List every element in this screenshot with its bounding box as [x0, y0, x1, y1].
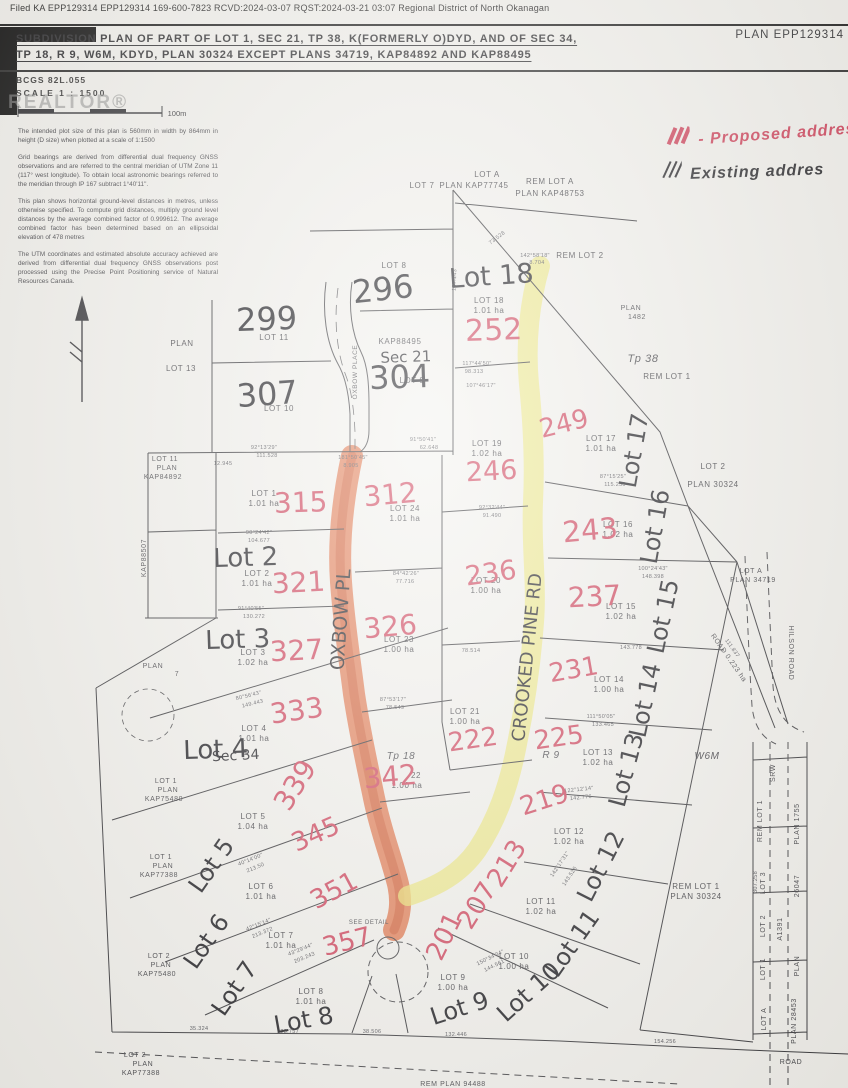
map-printed-label: ROAD — [780, 1059, 803, 1066]
map-printed-label: PLAN KAP48753 — [515, 189, 584, 198]
map-handwritten-label: CROOKED PINE RD — [508, 572, 547, 743]
map-address-label: 225 — [532, 720, 585, 757]
subdivision-plan-map: 100m LOT 7LOT APLAN KAP77745REM LOT APLA… — [0, 0, 848, 1088]
map-address-label: 321 — [271, 565, 326, 601]
map-printed-label: LOT 13 — [166, 364, 196, 373]
map-printed-label: LOT 1 — [760, 958, 767, 980]
map-address-label: 351 — [305, 866, 363, 916]
map-handwritten-label: Lot 4 — [183, 734, 249, 766]
map-printed-label: KAP77388 — [122, 1070, 160, 1077]
map-printed-label: PLAN — [153, 863, 174, 870]
map-printed-label: W6M — [694, 751, 719, 762]
map-dimension-label: 90°24'42" — [246, 530, 272, 536]
map-handwritten-label: 299 — [235, 299, 297, 339]
map-printed-label: PLAN 28453 — [791, 998, 798, 1044]
map-dimension-label: 91.490 — [483, 513, 502, 519]
map-printed-label: LOT 13 — [583, 748, 613, 757]
map-printed-label: LOT 2 — [148, 953, 170, 960]
map-dimension-label: 84°42'26" — [393, 571, 419, 577]
map-dimension-label: 8.905 — [343, 463, 358, 469]
map-printed-label: PLAN 30324 — [670, 892, 721, 901]
map-address-label: 312 — [362, 476, 418, 514]
map-handwritten-label: Lot 14 — [624, 661, 667, 740]
map-printed-label: PLAN 34719 — [730, 577, 776, 584]
map-dimension-label: 111.528 — [256, 453, 277, 459]
map-handwritten-label: Lot 16 — [635, 487, 676, 566]
map-dimension-label: 78.549 — [386, 705, 405, 711]
map-printed-label: LOT 11 — [152, 456, 178, 463]
scale-bar: 100m — [18, 106, 186, 118]
map-printed-label: 1.01 ha — [246, 892, 277, 901]
map-printed-label: LOT 8 — [298, 987, 323, 996]
map-printed-label: 1482 — [628, 314, 646, 321]
map-handwritten-label: Lot 13 — [603, 730, 650, 810]
map-dimension-label: 132.446 — [445, 1032, 467, 1038]
map-dimension-label: 98.313 — [465, 369, 484, 375]
map-handwritten-label: Lot 3 — [205, 624, 271, 656]
map-handwritten-label: Lot 15 — [642, 577, 685, 656]
map-dimension-label: 73.528 — [488, 230, 506, 246]
map-printed-label: KAP75480 — [138, 971, 176, 978]
map-printed-label: REM PLAN 94488 — [420, 1081, 486, 1088]
map-printed-label: 1.00 ha — [438, 983, 469, 992]
map-printed-label: LOT 6 — [248, 882, 273, 891]
map-printed-label: 1.02 ha — [606, 612, 637, 621]
map-dimension-label: 149.443 — [241, 698, 264, 709]
map-printed-label: LOT 4 — [241, 724, 266, 733]
map-address-label: 249 — [536, 404, 591, 445]
map-printed-label: LOT 9 — [440, 973, 465, 982]
map-handwritten-label: Lot 11 — [539, 905, 605, 983]
map-printed-label: 1.00 ha — [594, 685, 625, 694]
map-address-label: 326 — [362, 608, 418, 646]
map-address-label: 219 — [516, 778, 572, 822]
map-printed-label: LOT 11 — [526, 897, 556, 906]
map-printed-label: PLAN — [158, 787, 179, 794]
map-address-label: 327 — [269, 633, 324, 669]
map-printed-label: HILSON ROAD — [787, 626, 794, 681]
map-dimension-label: 111°50'05" — [587, 714, 616, 720]
map-dimension-label: 12.945 — [214, 461, 233, 467]
map-printed-label: 1.02 ha — [526, 907, 557, 916]
scale-bar-label: 100m — [168, 109, 187, 118]
map-dimension-label: 130.272 — [243, 614, 265, 620]
map-address-label: 243 — [561, 511, 619, 550]
map-printed-label: LOT 18 — [474, 296, 504, 305]
map-address-label: 237 — [567, 579, 622, 615]
map-address-label: 357 — [319, 922, 374, 963]
map-printed-label: Tp 38 — [627, 353, 658, 365]
map-dimension-label: 143.778 — [620, 645, 642, 651]
map-printed-label: KAP75480 — [145, 796, 183, 803]
map-handwritten-label: 307 — [235, 373, 299, 415]
map-address-label: 231 — [547, 651, 601, 689]
handwritten-lot-labels: 299307296304Sec 21Sec 34Lot 18Lot 2Lot 3… — [178, 258, 685, 1039]
map-printed-label: 1.04 ha — [238, 822, 269, 831]
map-address-label: 222 — [446, 722, 499, 759]
map-address-label: 339 — [267, 754, 323, 817]
map-handwritten-label: 296 — [350, 267, 415, 311]
map-dimension-label: 181°50'45" — [338, 455, 368, 461]
map-printed-label: 1.01 ha — [390, 514, 421, 523]
map-printed-label: LOT A — [761, 1008, 768, 1031]
map-printed-label: 1.00 ha — [384, 645, 415, 654]
map-address-label: 345 — [287, 811, 345, 859]
map-printed-label: 1.01 ha — [586, 444, 617, 453]
map-printed-label: LOT 21 — [450, 707, 480, 716]
map-handwritten-label: Lot 18 — [448, 258, 535, 295]
map-printed-label: REM LOT 1 — [672, 882, 720, 891]
map-address-label: 342 — [362, 758, 418, 796]
map-dimension-label: 78.514 — [462, 648, 481, 654]
map-dimension-label: 77.716 — [396, 579, 415, 585]
map-printed-label: OXBOW PLACE — [352, 345, 359, 400]
map-printed-label: LOT 2 — [700, 462, 725, 471]
map-handwritten-label: Lot 9 — [427, 986, 493, 1031]
map-printed-label: 7 — [175, 671, 180, 678]
map-printed-label: KAP77388 — [140, 872, 178, 879]
map-printed-label: A1391 — [777, 917, 784, 940]
map-printed-label: LOT 2 — [760, 915, 767, 937]
map-printed-label: PLAN 1755 — [794, 803, 801, 844]
map-printed-label: LOT 17 — [586, 434, 616, 443]
map-printed-label: 1.02 ha — [583, 758, 614, 767]
map-dimension-label: 154.256 — [654, 1039, 676, 1045]
map-printed-label: 1.02 ha — [554, 837, 585, 846]
map-dimension-label: 87°53'17" — [380, 697, 406, 703]
map-printed-label: REM LOT 1 — [643, 372, 691, 381]
map-dimension-label: 91°40'55" — [238, 606, 264, 612]
map-dimension-label: 62.648 — [420, 445, 439, 451]
plan7-detail-circle — [122, 689, 174, 741]
map-printed-label: 26047 — [794, 875, 801, 897]
map-printed-label: REM LOT 2 — [556, 251, 604, 260]
map-printed-label: LOT A — [740, 568, 763, 575]
map-printed-label: 1.02 ha — [238, 658, 269, 667]
map-printed-label: SRW — [770, 764, 777, 782]
map-printed-label: LOT 2 — [124, 1052, 146, 1059]
map-printed-label: LOT 12 — [554, 827, 584, 836]
map-dimension-label: 35.324 — [190, 1026, 209, 1032]
map-dimension-label: 107°46'17" — [466, 383, 496, 389]
map-printed-label: LOT 1 — [150, 854, 172, 861]
map-dimension-label: 307.258 — [753, 871, 759, 893]
map-dimension-label: 117°44'50" — [462, 361, 491, 367]
map-printed-label: LOT 3 — [760, 872, 767, 894]
map-printed-label: PLAN — [794, 956, 801, 977]
map-dimension-label: 100°24'43" — [638, 566, 668, 572]
map-printed-label: KAP88507 — [141, 539, 148, 577]
map-handwritten-label: Lot 2 — [213, 542, 279, 574]
map-printed-label: KAP88495 — [378, 337, 421, 346]
map-printed-label: LOT 1 — [155, 778, 177, 785]
map-printed-label: LOT 5 — [240, 812, 265, 821]
map-printed-label: PLAN — [170, 339, 193, 348]
map-dimension-label: 91°50'41" — [410, 437, 436, 443]
map-address-label: 252 — [464, 312, 522, 349]
map-dimension-label: 92°13'29" — [251, 445, 277, 451]
map-dimension-label: 133.465 — [592, 722, 614, 728]
map-dimension-label: 142.776 — [570, 794, 592, 802]
map-handwritten-label: Lot 17 — [614, 411, 655, 490]
scanned-plan-page: Filed KA EPP129314 EPP129314 169-600-782… — [0, 0, 848, 1088]
map-handwritten-label: Lot 5 — [183, 833, 240, 898]
map-handwritten-label: Sec 21 — [380, 347, 431, 367]
map-printed-label: KAP84892 — [144, 474, 182, 481]
map-printed-label: REM LOT 1 — [757, 800, 764, 842]
map-handwritten-label: Lot 6 — [178, 909, 235, 974]
handwritten-address-labels: 2522492462432362372312252222192132072013… — [267, 312, 622, 965]
map-address-label: 246 — [465, 455, 518, 489]
map-handwritten-label: Lot 7 — [206, 956, 263, 1021]
map-address-label: 236 — [463, 555, 518, 593]
map-printed-label: LOT 7 — [409, 181, 434, 190]
map-printed-label: LOT 19 — [472, 439, 502, 448]
map-printed-label: PLAN — [157, 465, 178, 472]
map-printed-label: PLAN — [133, 1061, 154, 1068]
map-printed-label: LOT A — [474, 170, 500, 179]
map-printed-label: REM LOT A — [526, 177, 574, 186]
map-printed-label: 1.01 ha — [242, 579, 273, 588]
map-printed-label: PLAN — [143, 663, 164, 670]
map-dimension-label: 92°32'44" — [479, 505, 505, 511]
map-address-label: 333 — [268, 691, 326, 731]
map-address-label: 315 — [273, 485, 328, 520]
map-printed-label: 1.01 ha — [266, 941, 297, 950]
map-printed-label: PLAN 30324 — [687, 480, 738, 489]
map-printed-label: PLAN — [621, 305, 642, 312]
north-arrow-icon — [70, 298, 88, 402]
map-dimension-label: 38.506 — [363, 1029, 382, 1035]
map-printed-label: PLAN KAP77745 — [439, 181, 508, 190]
map-printed-label: PLAN — [151, 962, 172, 969]
